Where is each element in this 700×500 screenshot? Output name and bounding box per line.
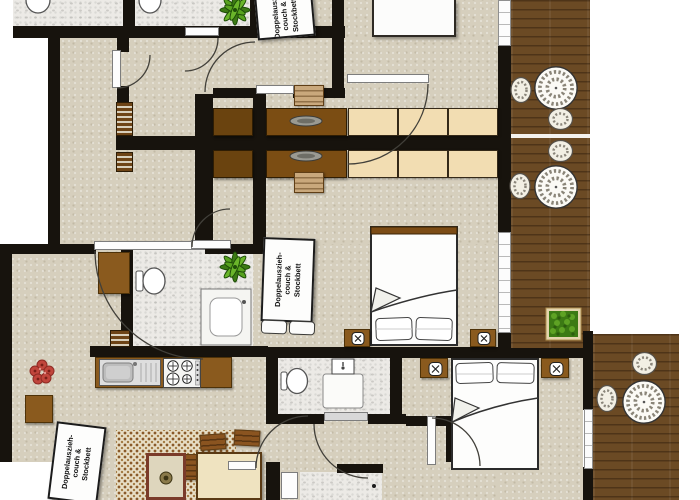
table-flower-icon [149,456,183,497]
wardrobe-icon [398,108,448,136]
dining-table-icon [213,108,253,136]
window-icon [584,409,593,469]
dining-chair-icon [294,85,324,106]
round-table-icon [621,379,667,425]
wall-segment [123,0,135,38]
wall-segment [90,346,268,357]
wardrobe-icon [398,150,448,178]
wicker-chair-icon [508,172,532,200]
wall-segment [332,0,344,98]
double-bed-icon [370,226,458,346]
wall-segment [266,462,280,500]
cabinet-icon [25,395,53,423]
wall-segment [390,350,402,424]
dining-table-icon [213,150,253,178]
nightstand-lamp-icon [344,329,370,347]
potted-plant-icon [218,250,252,284]
wall-segment-central [116,136,510,150]
window-icon [498,232,511,333]
wall-segment [583,331,593,410]
toilet-icon [23,0,53,16]
serving-plate-icon [288,150,324,162]
wall-segment [511,348,583,358]
coffee-table-icon [146,453,186,500]
wardrobe-icon [448,108,498,136]
round-table-icon [533,164,579,210]
sofa-bed-label: Doppelauszieh- couch & Stockbett [261,237,316,323]
nightstand-lamp-icon [420,358,448,378]
wall-segment [195,94,213,244]
dining-table [196,452,262,500]
dining-chair-icon [234,429,261,446]
round-table-icon [533,65,579,111]
door-leaf [228,461,256,470]
wall-segment [337,464,383,473]
sofa-bed-label: Doppelauszieh- couch & Stockbett [47,421,106,500]
window-icon [498,0,511,46]
wall-segment [213,88,257,98]
sofa-bed-icon: Doppelauszieh- couch & Stockbett [254,0,316,40]
stove-icon [163,358,201,388]
door-leaf [191,240,231,249]
wicker-chair-icon [595,384,619,413]
wicker-chair-icon [509,76,533,104]
door-leaf [185,27,219,36]
bathroom-bottom [300,472,382,500]
wicker-chair-icon [631,351,658,376]
wall-segment [583,467,593,500]
sofa-cushion [289,321,315,336]
door-leaf [347,74,429,83]
sofa-cushion [261,320,287,335]
wall-segment [266,347,511,358]
serving-plate-icon [288,115,324,127]
bathroom-vanity-icon [320,358,366,410]
door-leaf [324,412,368,421]
floor-plan: Doppelauszieh- couch & Stockbett Doppela… [0,0,700,500]
door-knob [372,484,376,488]
flower-icon [29,358,55,386]
wall-segment [0,244,12,462]
toilet-icon [135,264,167,298]
double-bed-icon [372,0,456,37]
wicker-chair-icon [547,107,574,131]
toilet-icon [280,365,310,397]
dining-chair-icon [294,172,324,193]
shelf-icon [116,102,133,136]
shelf-icon [116,152,133,172]
wall-segment [48,38,60,250]
shelf-icon [110,330,130,347]
cabinet-icon [98,252,130,294]
sofa-bed-icon: Doppelauszieh- couch & Stockbett [47,421,106,500]
outside-cut-bottom-left [0,462,52,500]
sink-icon [99,359,161,386]
door-leaf [427,416,436,465]
wall-segment [368,414,406,424]
deck-divider [511,134,590,138]
wall-segment [266,414,324,424]
nightstand-lamp-icon [470,329,496,347]
door-leaf [94,241,205,250]
wall-segment [266,350,278,424]
nightstand-lamp-icon [541,358,569,378]
bathroom-vanity-icon [200,288,252,346]
door-leaf [256,85,294,94]
sofa-bed-icon: Doppelauszieh- couch & Stockbett [261,237,316,323]
double-bed-icon [451,358,539,470]
wall-segment [0,244,96,254]
wall-segment [253,94,266,244]
dining-chair-icon [199,433,226,451]
planter-box-icon [545,307,582,341]
wardrobe-icon [348,108,398,136]
wicker-chair-icon [547,139,574,163]
sofa-bed-label: Doppelauszieh- couch & Stockbett [254,0,316,40]
door-leaf [281,472,298,499]
toilet-icon [136,0,164,16]
potted-plant-icon [218,0,252,26]
wardrobe-icon [348,150,398,178]
wall-segment [498,44,511,234]
door-leaf [112,50,121,88]
wardrobe-icon [448,150,498,178]
